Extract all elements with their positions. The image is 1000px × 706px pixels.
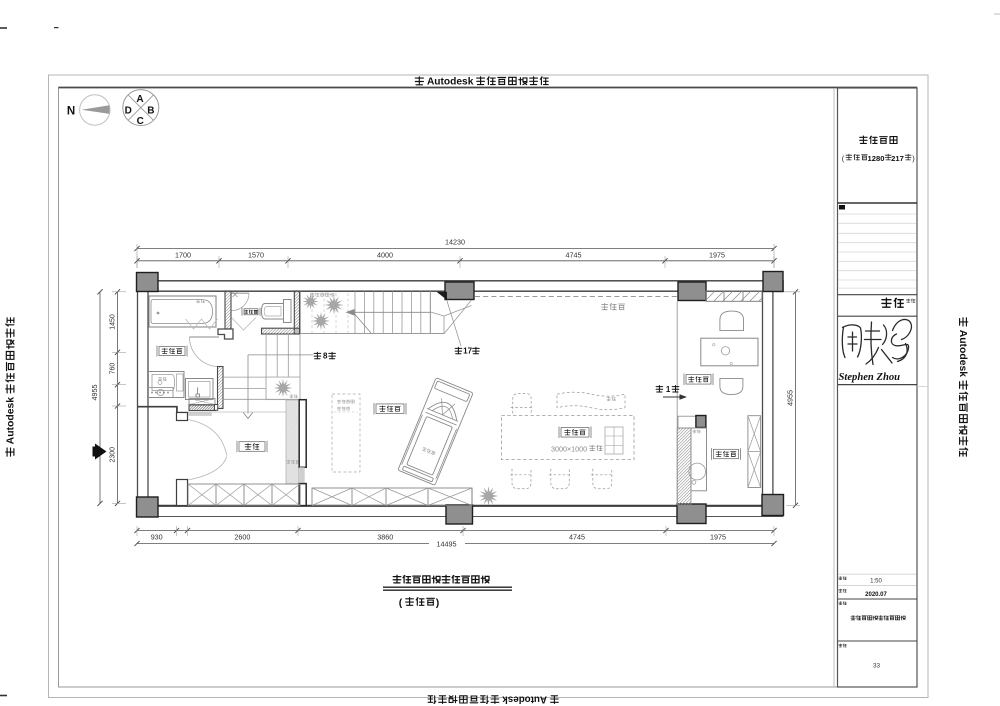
svg-text:4000: 4000 [377,250,393,259]
svg-text:N: N [67,106,75,118]
svg-text:1570: 1570 [248,250,264,259]
svg-text:4955: 4955 [785,390,794,406]
svg-text:Stephen Zhou: Stephen Zhou [839,372,901,383]
svg-text:14230: 14230 [445,238,465,247]
svg-text:1:50: 1:50 [870,579,882,585]
svg-text:2300: 2300 [110,447,117,463]
svg-text:(: ( [399,597,403,609]
svg-text:930: 930 [151,532,163,541]
svg-text:1280: 1280 [868,154,885,163]
svg-text:33: 33 [873,663,881,670]
svg-text:4745: 4745 [566,250,582,259]
svg-text:1: 1 [666,385,671,394]
svg-text:A: A [136,94,143,105]
svg-text:8: 8 [323,352,328,361]
svg-text:3860: 3860 [377,532,393,541]
svg-text:1975: 1975 [710,532,726,541]
svg-text:B: B [147,106,154,117]
svg-text:Autodesk: Autodesk [5,397,16,445]
svg-text:4955: 4955 [90,385,99,401]
svg-text:1975: 1975 [709,250,725,259]
svg-text:Autodesk: Autodesk [957,330,968,378]
svg-text:4745: 4745 [569,532,585,541]
svg-text:): ) [436,597,440,609]
svg-text:1700: 1700 [175,250,191,259]
svg-text:14495: 14495 [437,539,457,548]
svg-text:3000×1000: 3000×1000 [551,445,587,454]
svg-text:17: 17 [463,347,472,356]
svg-text:2020.07: 2020.07 [865,592,887,598]
svg-text:1450: 1450 [110,314,117,330]
svg-text:Autodesk: Autodesk [427,76,474,87]
svg-text:2600: 2600 [234,532,250,541]
svg-text:760: 760 [110,363,117,375]
svg-text:C: C [137,116,144,127]
svg-text:D: D [125,106,132,117]
svg-text:Autodesk: Autodesk [502,693,547,704]
svg-text:217: 217 [891,154,904,163]
